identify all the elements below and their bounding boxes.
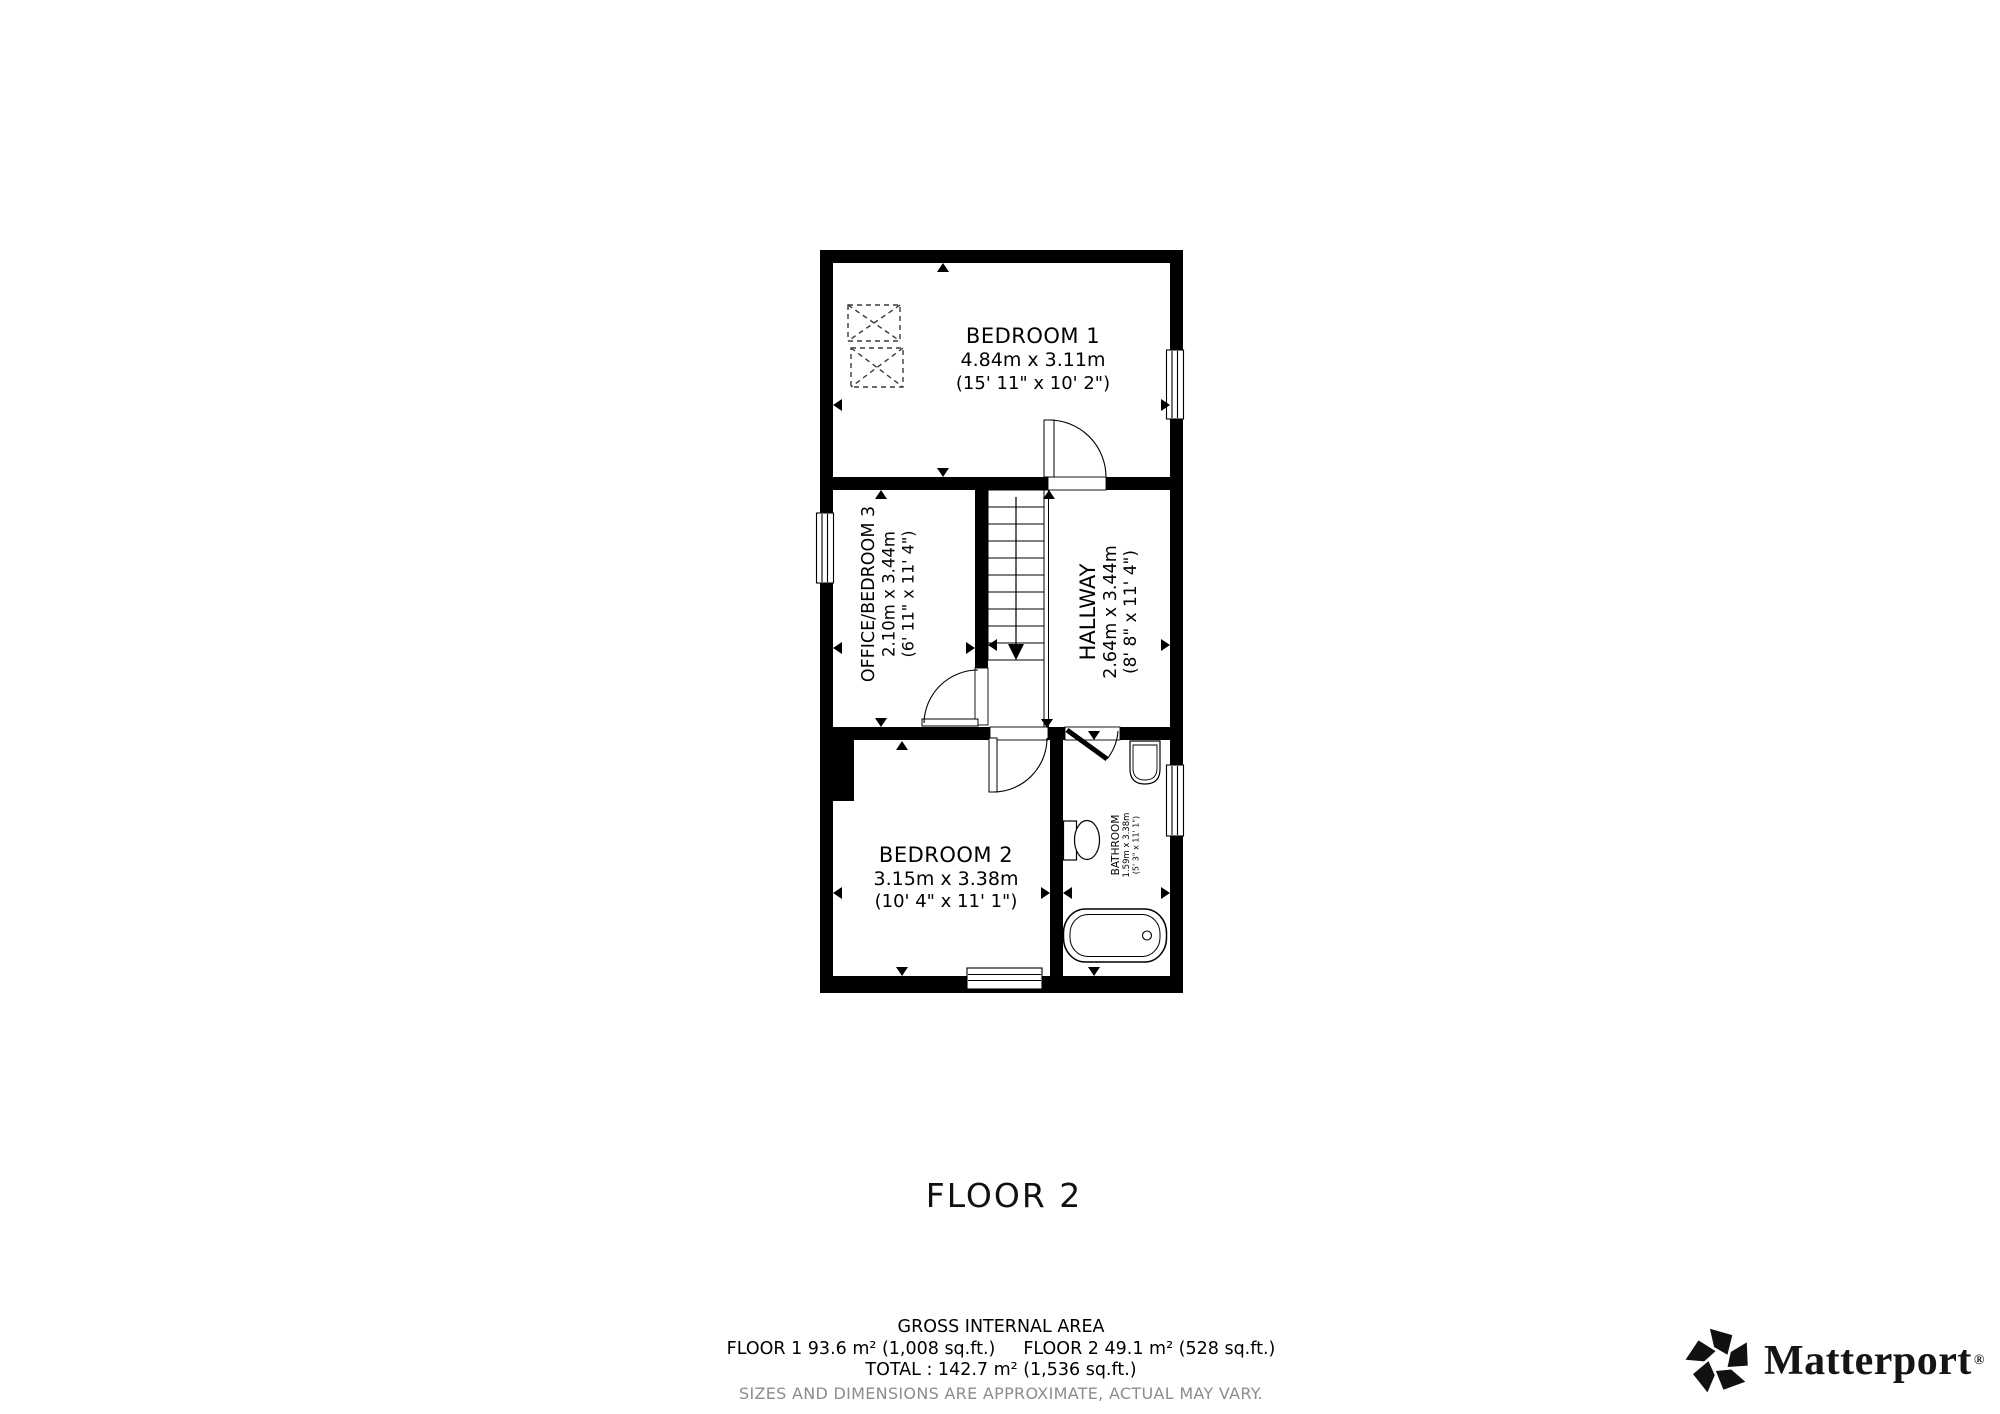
wall-bedroom1-right	[1106, 477, 1170, 490]
room-size-imperial: (6' 11" x 11' 4")	[899, 531, 918, 658]
door-leaf	[1044, 420, 1054, 477]
room-label-office-bedroom3: OFFICE/BEDROOM 3 2.10m x 3.44m (6' 11" x…	[859, 506, 918, 682]
room-label-bathroom: BATHROOM 1.59m x 3.38m (5' 3" x 11' 1")	[1110, 813, 1141, 878]
door-leaf	[922, 719, 978, 726]
skylight-2	[851, 348, 903, 387]
door-opening	[1048, 477, 1106, 490]
wall-hall-bath-right	[1120, 727, 1170, 740]
door-swing-arc	[1049, 420, 1106, 477]
bedroom1-window	[1167, 350, 1184, 419]
bathtub-icon	[1064, 909, 1167, 962]
dim-arrow	[875, 718, 887, 727]
door-swing-arc	[924, 670, 978, 723]
matterport-logo: Matterport®	[1684, 1326, 1984, 1396]
door-opening	[990, 727, 1048, 740]
dim-arrow	[1041, 887, 1050, 899]
floor-title: FLOOR 2	[604, 1176, 1404, 1215]
floor2-area: FLOOR 2 49.1 m² (528 sq.ft.)	[1023, 1339, 1275, 1359]
bedroom2-door	[989, 727, 1048, 792]
bathroom-window	[1167, 765, 1184, 836]
room-name: BEDROOM 2	[879, 843, 1013, 867]
chimney-breast	[833, 740, 854, 801]
room-label-hallway: HALLWAY 2.64m x 3.44m (8' 8" x 11' 4")	[1076, 545, 1141, 679]
total-area: TOTAL : 142.7 m² (1,536 sq.ft.)	[501, 1360, 1501, 1382]
registered-mark: ®	[1974, 1353, 1984, 1369]
area-summary: GROSS INTERNAL AREA FLOOR 1 93.6 m² (1,0…	[501, 1317, 1501, 1404]
room-size-metric: 1.59m x 3.38m	[1122, 813, 1132, 878]
room-size-imperial: (5' 3" x 11' 1")	[1132, 816, 1141, 874]
dim-arrow	[1063, 887, 1072, 899]
dim-arrow	[896, 741, 908, 750]
room-name: BEDROOM 1	[966, 324, 1100, 348]
dim-arrow	[966, 642, 975, 654]
room-size-metric: 2.10m x 3.44m	[880, 531, 899, 657]
office-window	[817, 513, 834, 583]
wall-hall-bath-mid	[1048, 727, 1065, 740]
staircase	[988, 490, 1049, 727]
dim-arrow	[937, 468, 949, 477]
room-size-metric: 3.15m x 3.38m	[874, 868, 1019, 890]
dim-arrow	[937, 263, 949, 272]
dim-arrow	[896, 967, 908, 976]
skylight-1	[848, 305, 900, 341]
room-name: OFFICE/BEDROOM 3	[859, 506, 879, 682]
room-size-imperial: (8' 8" x 11' 4")	[1121, 550, 1141, 674]
skylights	[848, 305, 903, 387]
room-name: BATHROOM	[1110, 815, 1122, 876]
room-name: HALLWAY	[1076, 563, 1100, 660]
wall-bedroom1-left	[833, 477, 1048, 490]
bedroom1-door	[1044, 420, 1106, 490]
dim-arrow	[1088, 967, 1100, 976]
bedroom2-window	[967, 968, 1042, 989]
room-size-imperial: (15' 11" x 10' 2")	[956, 373, 1110, 394]
dim-arrow	[833, 399, 842, 411]
area-floors-line: FLOOR 1 93.6 m² (1,008 sq.ft.)FLOOR 2 49…	[501, 1339, 1501, 1361]
dim-arrow	[833, 887, 842, 899]
room-label-bedroom1: BEDROOM 1 4.84m x 3.11m (15' 11" x 10' 2…	[956, 324, 1110, 394]
toilet-icon	[1064, 821, 1100, 861]
floorplan-page: BEDROOM 1 4.84m x 3.11m (15' 11" x 10' 2…	[0, 0, 2000, 1414]
wall-bedroom2-bathroom	[1050, 740, 1063, 976]
room-size-imperial: (10' 4" x 11' 1")	[875, 891, 1018, 912]
area-disclaimer: SIZES AND DIMENSIONS ARE APPROXIMATE, AC…	[501, 1383, 1501, 1405]
wall-hall-bedroom2-left	[833, 727, 990, 740]
dim-arrow	[1161, 887, 1170, 899]
room-size-metric: 2.64m x 3.44m	[1101, 545, 1121, 679]
dim-arrow	[1161, 639, 1170, 651]
area-heading: GROSS INTERNAL AREA	[501, 1317, 1501, 1339]
door-opening	[975, 668, 988, 725]
office-door	[922, 668, 988, 726]
floor1-area: FLOOR 1 93.6 m² (1,008 sq.ft.)	[727, 1339, 996, 1359]
logo-wordmark: Matterport	[1764, 1326, 1972, 1396]
door-swing-arc	[993, 738, 1047, 792]
room-size-metric: 4.84m x 3.11m	[961, 349, 1106, 371]
dim-arrow	[833, 642, 842, 654]
room-label-bedroom2: BEDROOM 2 3.15m x 3.38m (10' 4" x 11' 1"…	[874, 843, 1019, 912]
matterport-star-icon	[1684, 1326, 1754, 1396]
dim-arrow	[875, 490, 887, 499]
sink-icon	[1130, 741, 1160, 784]
stair-rail	[1044, 490, 1049, 727]
wall-office-stairs	[975, 490, 988, 668]
door-leaf	[989, 738, 997, 792]
